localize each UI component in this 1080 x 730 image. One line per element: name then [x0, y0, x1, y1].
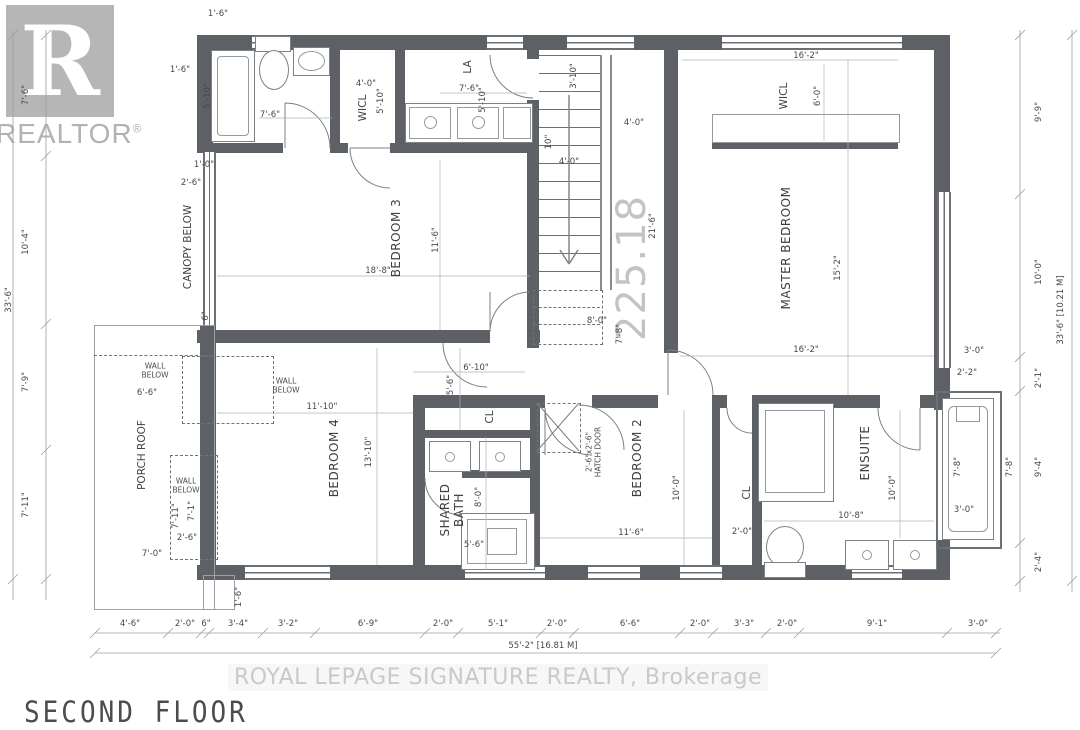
door-arc	[350, 148, 390, 188]
room-label: PORCH ROOF	[136, 420, 148, 490]
stair-down-arrow	[560, 95, 578, 264]
room-label: WALL BELOW	[141, 362, 168, 379]
dimension-label: 7'-6"	[459, 85, 479, 95]
dimension-label: 3'-0"	[968, 620, 988, 630]
room-label: MASTER BEDROOM	[780, 187, 794, 310]
dimension-label: 6"	[202, 311, 212, 320]
dimension-label: 6'-9"	[358, 620, 378, 630]
dimension-label: 7'-9"	[22, 372, 32, 392]
room-label: BEDROOM 3	[390, 199, 404, 278]
dimension-label: 5'-10"	[377, 88, 387, 114]
dimension-label: 8'-0"	[475, 487, 485, 507]
dimension-label: 7'-1"	[188, 501, 198, 521]
dimension-label: 10'-8"	[838, 512, 864, 522]
dimension-label: 7'-8"	[1006, 457, 1016, 477]
dimension-label: 1'-6"	[170, 66, 190, 76]
dimension-label: 7'-8"	[616, 324, 626, 344]
dimension-label: 11'-10"	[307, 403, 338, 413]
room-label: CL	[484, 410, 496, 423]
room-label: WALL BELOW	[172, 477, 199, 494]
dimension-label: 1'-6"	[208, 10, 228, 20]
dimension-label: 3'-0"	[954, 506, 974, 516]
dimension-label: 9'-9"	[1035, 102, 1045, 122]
dimension-label: 33'-6" [10.21 M]	[1057, 275, 1067, 344]
room-label: WICL	[357, 95, 369, 122]
dimension-label: 5'-10"	[479, 87, 489, 113]
room-label: CANOPY BELOW	[182, 205, 194, 289]
dimension-label: 3'-2"	[278, 620, 298, 630]
door-arc	[285, 103, 330, 148]
dimension-label: 6'-0"	[814, 86, 824, 106]
dimension-label: 10'-0"	[673, 475, 683, 501]
room-label: 2'-6"x2'-6" HATCH DOOR	[585, 427, 602, 477]
dimension-label: 4'-0"	[559, 158, 579, 168]
dimension-label: 16'-2"	[793, 52, 819, 62]
dimension-label: 3'-10"	[570, 63, 580, 89]
dimension-label: 55'-2" [16.81 M]	[508, 642, 577, 652]
dimension-label: 2'-1"	[1035, 368, 1045, 388]
dimension-label: 5'-1"	[488, 620, 508, 630]
dimension-label: 7'-0"	[142, 550, 162, 560]
dimension-label: 18'-8"	[365, 267, 391, 277]
hatch-x-icon	[537, 403, 579, 451]
dimension-label: 13'-10"	[365, 437, 375, 468]
dimension-label: 7'-8"	[954, 457, 964, 477]
dim-chain-line	[13, 30, 1072, 653]
dimension-label: 6'-6"	[620, 620, 640, 630]
dimension-label: 5'-6"	[464, 541, 484, 551]
door-arc	[490, 292, 530, 332]
dimension-label: 4'-0"	[356, 80, 376, 90]
dimension-label: 9'-4"	[1035, 457, 1045, 477]
dimension-label: 33'-6"	[5, 287, 15, 313]
dimension-label: 21'-6"	[649, 213, 659, 239]
dimension-label: 5'-6"	[447, 375, 457, 395]
door-arc	[727, 408, 752, 433]
dimension-label: 3'-4"	[228, 620, 248, 630]
dimension-label: 2'-6"	[181, 179, 201, 189]
room-label: WALL BELOW	[272, 377, 299, 394]
door-arc	[668, 350, 713, 395]
dimension-label: 7'-11"	[22, 492, 32, 518]
dimension-label: 3'-0"	[964, 347, 984, 357]
dimension-label: 7'-6"	[22, 85, 32, 105]
dimension-label: 2'-0"	[690, 620, 710, 630]
dimension-label: 3'-3"	[734, 620, 754, 630]
room-label: BEDROOM 2	[631, 419, 645, 498]
dimension-label: 6'-6"	[137, 389, 157, 399]
door-arc	[490, 55, 533, 98]
dimension-label: 2'-0"	[777, 620, 797, 630]
dimension-label: 9'-1"	[867, 620, 887, 630]
dimension-label: 6'-10"	[463, 364, 489, 374]
dimension-label: 2'-6"	[177, 534, 197, 544]
door-arc	[878, 408, 920, 450]
dimension-label: 4'-0"	[624, 119, 644, 129]
dimension-label: 15'-2"	[834, 255, 844, 281]
interior-dim-line	[217, 60, 934, 570]
dimension-label: 11'-6"	[618, 529, 644, 539]
dimension-label: 16'-2"	[793, 346, 819, 356]
dimension-label: 11'-6"	[432, 227, 442, 253]
dimension-label: 2'-2"	[957, 369, 977, 379]
dimension-label: 10'-4"	[22, 229, 32, 255]
dimension-label: 2'-0"	[732, 528, 752, 538]
dimension-label: 2'-0"	[547, 620, 567, 630]
dimension-label: 7'-11"	[172, 503, 182, 529]
dimension-label: 2'-0"	[175, 620, 195, 630]
dimension-label: 10"	[545, 135, 555, 150]
dimension-label: 1'-6"	[235, 587, 245, 607]
dimension-label: 5'-10"	[204, 83, 214, 109]
dimension-label: 8'-0"	[587, 317, 607, 327]
dimension-label: 7'-6"	[260, 111, 280, 121]
dimension-label: 1'-0"	[194, 161, 214, 171]
dimension-label: 2'-0"	[433, 620, 453, 630]
dimension-label: 10'-0"	[889, 475, 899, 501]
room-label: WICL	[778, 83, 790, 110]
floor-plan-canvas: R REALTOR® 225.18 ROYAL LEPAGE SIGNATURE…	[0, 0, 1080, 730]
dimension-label: 6"	[201, 620, 210, 630]
room-label: LA	[462, 60, 474, 73]
dimension-label: 2'-4"	[1035, 552, 1045, 572]
dim-ticks	[8, 30, 1077, 658]
room-label: ENSUITE	[859, 426, 873, 481]
dimension-label: 4'-6"	[120, 620, 140, 630]
dimension-label: 10'-0"	[1035, 259, 1045, 285]
room-label: CL	[741, 486, 753, 499]
room-label: SHARED BATH	[439, 483, 467, 536]
room-label: BEDROOM 4	[328, 419, 342, 498]
